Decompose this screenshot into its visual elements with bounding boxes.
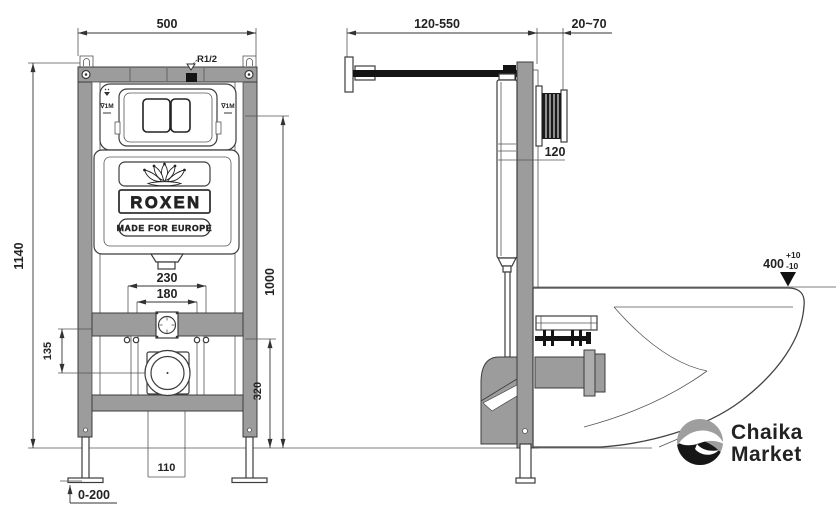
cistern-tank: ROXEN MADE FOR EUROPE: [94, 150, 239, 269]
front-view: 1140 500: [12, 17, 289, 503]
dim-180-label: 180: [157, 287, 178, 301]
installation-frame-drawing: 1140 500: [0, 0, 840, 525]
level-mark-left: ∇1M: [99, 102, 113, 110]
fixing-hole: [203, 337, 208, 342]
dim-110-label: 110: [158, 462, 176, 474]
dim-400-label: 400: [763, 257, 784, 271]
flush-plate-panel: ∇1M ∇1M: [99, 84, 236, 150]
fixing-hole: [124, 337, 129, 342]
fixing-hole: [194, 337, 199, 342]
side-view: 120-550 20~70: [345, 17, 836, 483]
frame-crossbars: [92, 312, 243, 411]
watermark-logo: Chaika Market: [676, 418, 803, 466]
dim-1140-label: 1140: [12, 242, 26, 269]
cistern-side: [497, 74, 517, 357]
inlet-port-icon: [186, 73, 197, 82]
flush-pipe: [505, 272, 510, 357]
watermark-line2: Market: [731, 443, 802, 466]
dim-400-tol-plus: +10: [786, 250, 801, 260]
level-arrow-icon: [780, 272, 796, 287]
dim-320-label: 320: [252, 382, 264, 400]
dim-1000-label: 1000: [263, 268, 277, 296]
watermark-line1: Chaika: [731, 421, 803, 444]
inlet-thread-label: R1/2: [197, 54, 217, 65]
dim-135-label: 135: [42, 342, 54, 360]
foot-right: [246, 437, 253, 479]
dim-leg-adjust: 0-200: [60, 481, 117, 503]
dim-pipe-extension: 120-550: [347, 17, 537, 64]
dim-wall-thickness: 20~70: [529, 17, 612, 92]
dim-400-tol-minus: -10: [786, 261, 799, 271]
tank-tagline-label: MADE FOR EUROPE: [117, 223, 213, 233]
adjustable-feet: [68, 428, 267, 483]
dim-120-label: 120: [545, 145, 566, 159]
dim-0-200-label: 0-200: [78, 488, 110, 502]
dim-overall-height: 1140: [12, 63, 80, 448]
dim-top-width: 500: [78, 17, 256, 56]
level-mark-right: ∇1M: [220, 102, 234, 110]
dim-110: 110: [148, 411, 185, 477]
flush-button-small: [171, 99, 190, 132]
dim-120-550-label: 120-550: [414, 17, 460, 31]
frame-rail-right: [243, 67, 257, 437]
dim-500-label: 500: [157, 17, 178, 31]
flush-button-large: [143, 99, 170, 132]
water-supply-pipe: [345, 57, 517, 92]
dim-20-70-label: 20~70: [571, 17, 606, 31]
supply-pipe: [353, 70, 517, 77]
wall-sleeve-corrugation: [536, 86, 567, 146]
technical-drawing-page: 1140 500: [0, 0, 840, 525]
crossbar-lower: [92, 395, 243, 411]
tank-brand-label: ROXEN: [130, 194, 201, 212]
frame-rail-left: [78, 67, 92, 437]
dim-230-label: 230: [157, 271, 178, 285]
dim-bowl-height: 400 +10 -10: [533, 250, 836, 287]
pipe-bracket: [345, 57, 353, 92]
drain-elbow: [481, 357, 517, 444]
foot-left: [82, 437, 89, 479]
fixing-hole: [133, 337, 138, 342]
frame-rail-top: [78, 67, 257, 82]
